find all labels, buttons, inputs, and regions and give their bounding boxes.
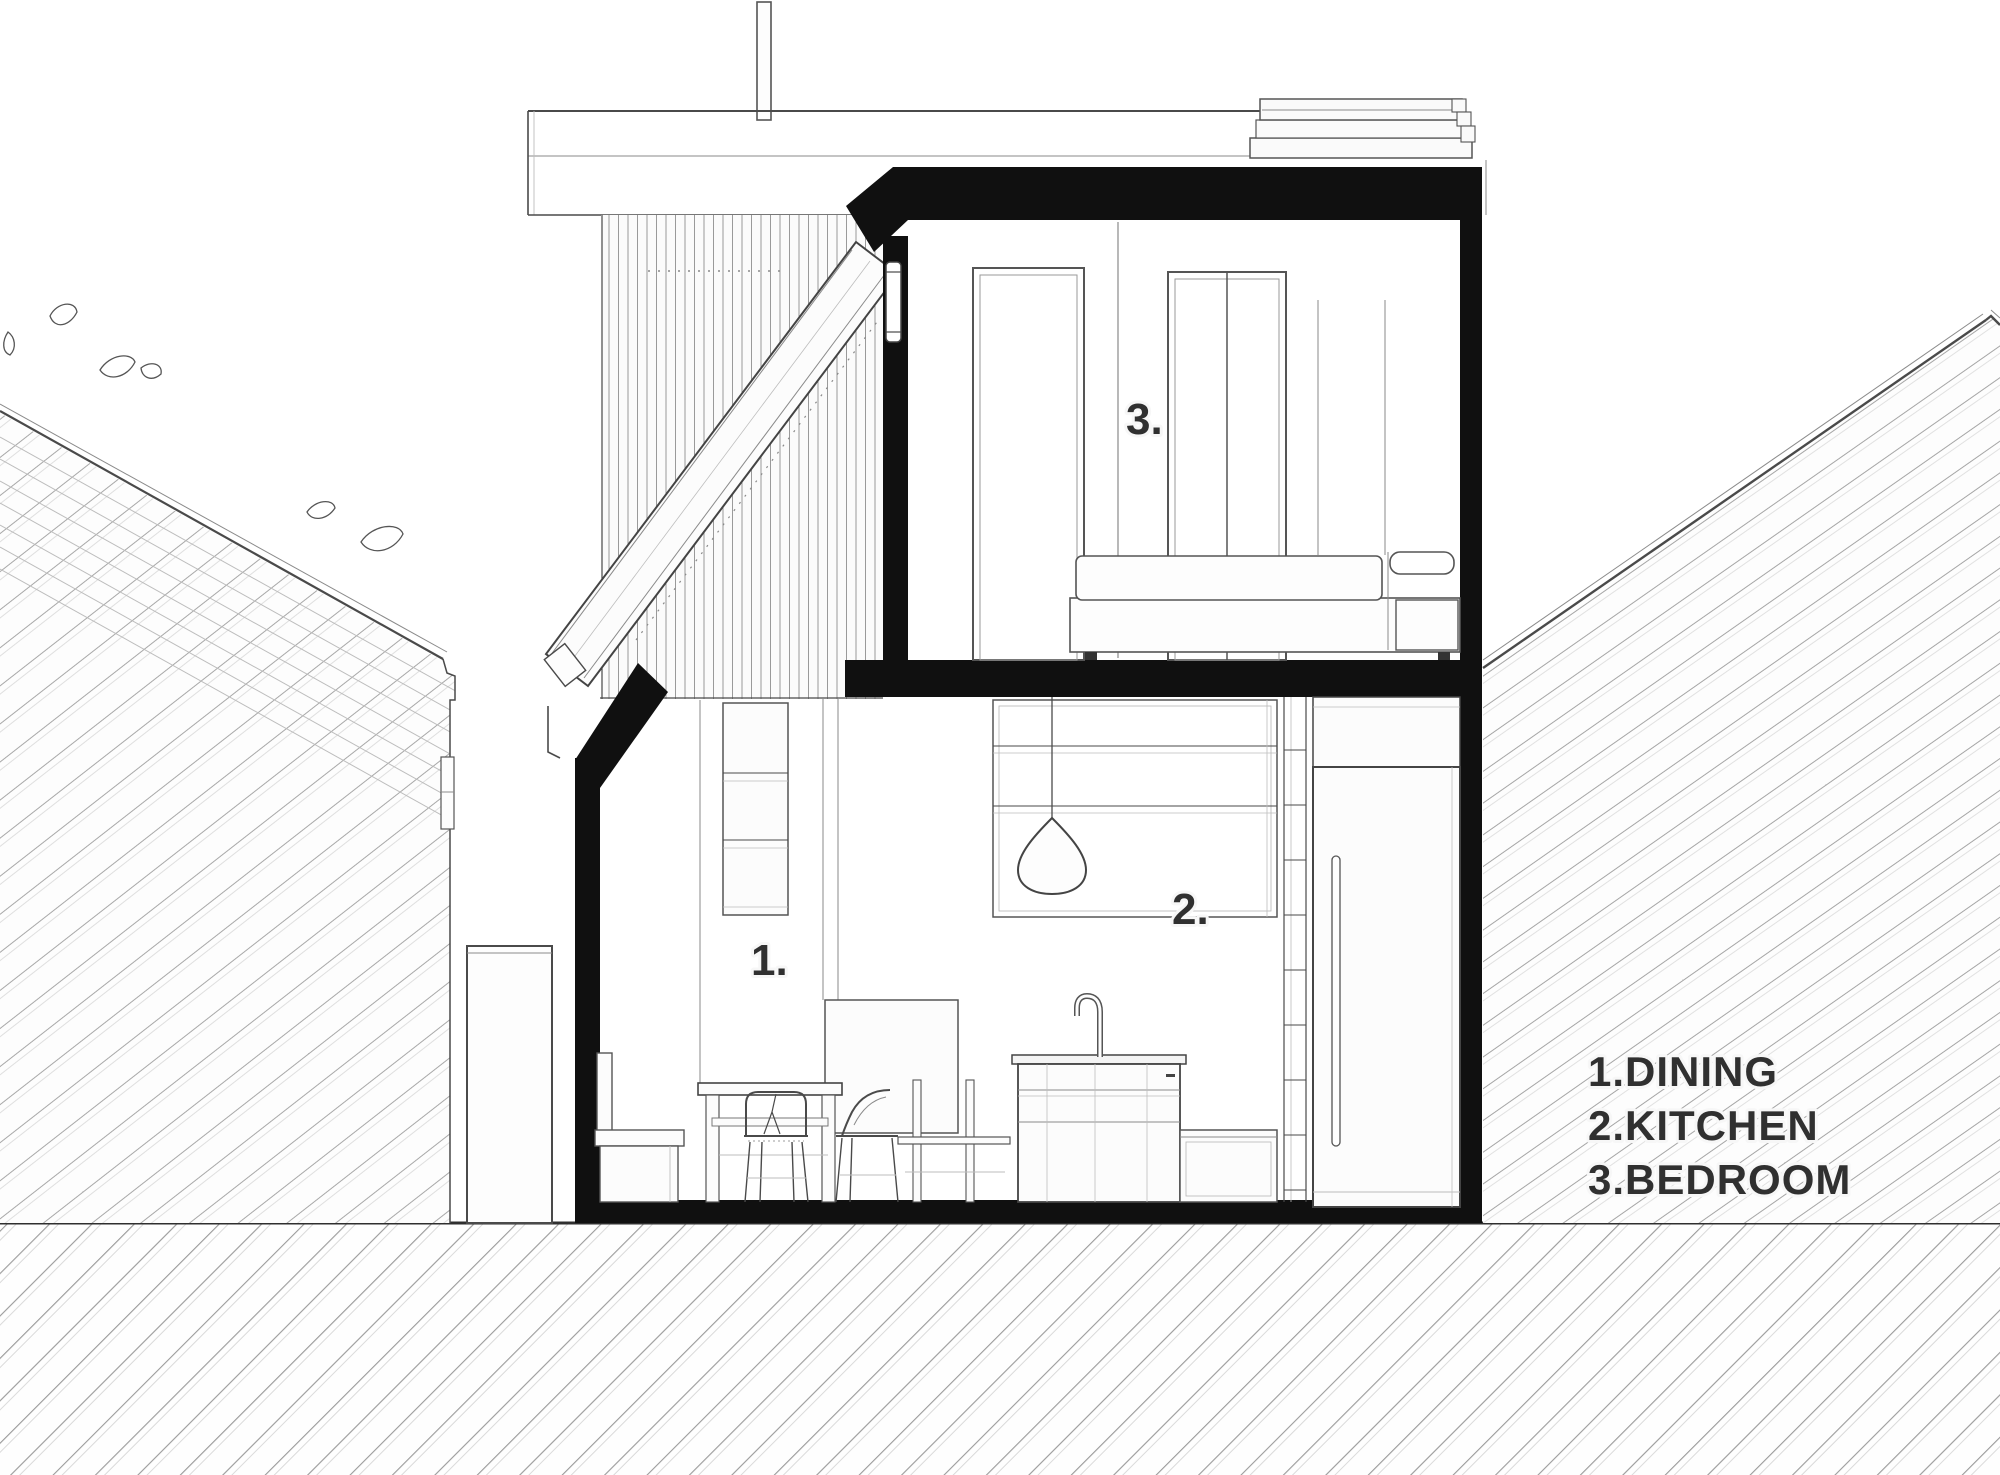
- legend-item-kitchen: 2.KITCHEN: [1588, 1102, 1819, 1149]
- bench-base: [600, 1146, 678, 1202]
- room-label-dining: 1.: [751, 936, 788, 985]
- hinge-cover: [886, 262, 901, 342]
- back-panel: [825, 1000, 958, 1133]
- pendant-shade: [1018, 818, 1086, 894]
- shelf-frame: [723, 703, 788, 915]
- pendant-lamp-icon: [1018, 697, 1086, 894]
- low-cabinet: [1180, 1130, 1277, 1202]
- chair-legs: [745, 1142, 808, 1202]
- left-neighbor-building: [0, 304, 552, 1223]
- wishbone-chair: [744, 1092, 808, 1202]
- bed-foot: [1085, 652, 1097, 660]
- opener-hook: [548, 706, 560, 758]
- table-top: [698, 1083, 842, 1095]
- stool-seat: [898, 1137, 1010, 1144]
- island-body: [1018, 1064, 1180, 1202]
- leaf-icon: [100, 356, 135, 377]
- pillow: [1390, 552, 1454, 574]
- table-leg: [706, 1095, 719, 1202]
- dining-table: [698, 1083, 842, 1202]
- chair-hoop: [746, 1092, 806, 1136]
- rooftop-unit-tray: [1260, 99, 1462, 120]
- fridge: [1313, 697, 1460, 1207]
- chair-legs: [836, 1138, 898, 1202]
- side-door-panel: [467, 946, 552, 1223]
- leaf-icon: [141, 364, 161, 379]
- bedroom-door-frame: [973, 268, 1084, 660]
- ladder-rungs: [1284, 750, 1306, 1190]
- legend-item-bedroom: 3.BEDROOM: [1588, 1156, 1851, 1203]
- island-handle: [1166, 1074, 1175, 1077]
- bench: [595, 1053, 684, 1202]
- shelf-unit: [723, 703, 788, 915]
- room-label-bedroom: 3.: [1126, 395, 1163, 444]
- bedside-box: [1396, 600, 1458, 650]
- table-leg: [822, 1095, 835, 1202]
- skylight-hinge-detail: [886, 262, 901, 342]
- legend-item-dining: 1.DINING: [1588, 1048, 1778, 1095]
- bed-foot: [1438, 652, 1450, 660]
- bench-seat: [595, 1130, 684, 1146]
- ladder: [1284, 697, 1306, 1202]
- bedroom-floor-slab: [845, 660, 1482, 697]
- house-section: 3.: [528, 2, 1486, 1223]
- mattress: [1076, 556, 1382, 600]
- ground-hatch: [0, 1224, 2000, 1475]
- rooftop-unit: [1250, 99, 1475, 158]
- downpipe: [441, 757, 454, 829]
- kitchen-island: [1012, 996, 1186, 1202]
- flue-pipe: [757, 2, 771, 120]
- kitchen: 2.: [898, 697, 1460, 1207]
- bed: [1070, 552, 1460, 660]
- left-wall: [575, 758, 600, 1223]
- section-svg: 3.: [0, 0, 2000, 1475]
- room-label-kitchen: 2.: [1172, 885, 1209, 934]
- right-wall: [1460, 220, 1482, 1223]
- fridge-handle: [1332, 856, 1340, 1146]
- rooftop-unit-tray: [1250, 138, 1472, 158]
- bench-backrest: [597, 1053, 612, 1138]
- bedroom: 3.: [973, 222, 1460, 660]
- faucet-icon: [1077, 996, 1100, 1057]
- leaf-icon: [4, 332, 15, 355]
- rooftop-unit-cap: [1452, 99, 1466, 112]
- rooftop-unit-cap: [1461, 126, 1475, 142]
- low-cabinet-body: [1180, 1130, 1277, 1202]
- ground: [0, 1223, 2000, 1475]
- bedroom-door-inner: [980, 275, 1077, 660]
- chair-y-splat: [764, 1094, 780, 1134]
- section-drawing: 3.: [0, 0, 2000, 1475]
- roof-slab: [846, 167, 1482, 252]
- leaf-icon: [361, 526, 403, 550]
- dining: 1.: [595, 697, 958, 1202]
- upper-cabinet: [1313, 697, 1460, 767]
- leaf-icon: [50, 304, 77, 325]
- rooftop-unit-cap: [1457, 112, 1471, 126]
- rooftop-unit-tray: [1256, 120, 1466, 138]
- leaf-icon: [307, 502, 335, 519]
